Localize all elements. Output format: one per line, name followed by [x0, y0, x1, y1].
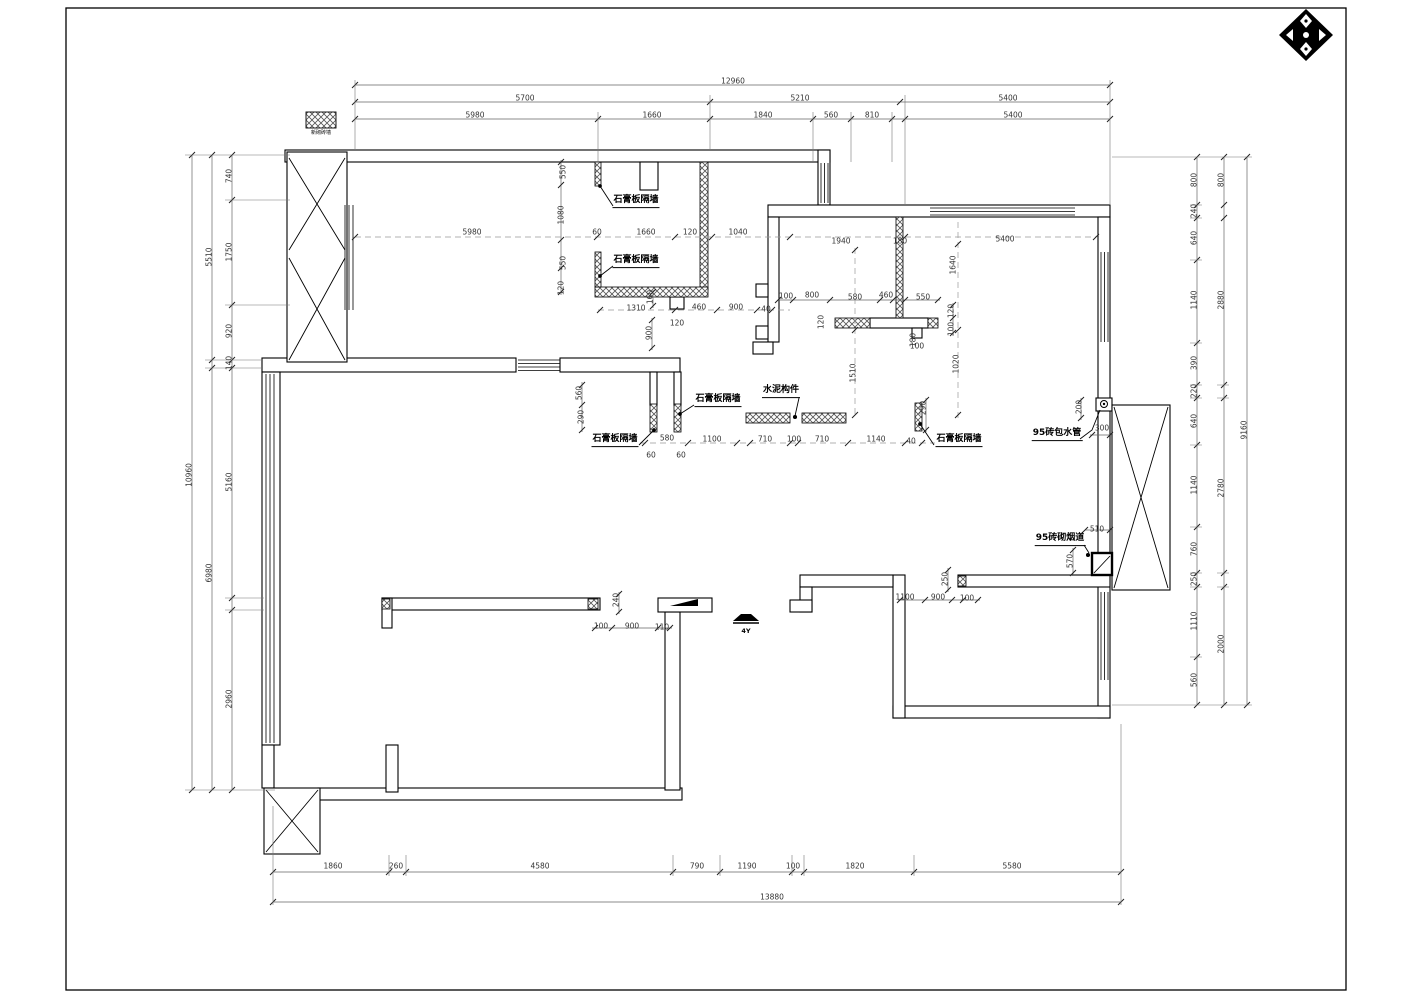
- section-arrow-symbol: [733, 614, 759, 621]
- dashed-lines: [355, 222, 1096, 443]
- legend-swatch: [306, 112, 336, 128]
- drawing-sheet: 新砌砖墙 4Y 12960570052105400598016601840560…: [0, 0, 1415, 1000]
- shaft-x-braces: [264, 152, 1170, 854]
- floor-plan-linework: [0, 0, 1415, 1000]
- logo-mark: [1279, 9, 1333, 61]
- walls: [262, 150, 1112, 800]
- window-lines: [266, 163, 1108, 743]
